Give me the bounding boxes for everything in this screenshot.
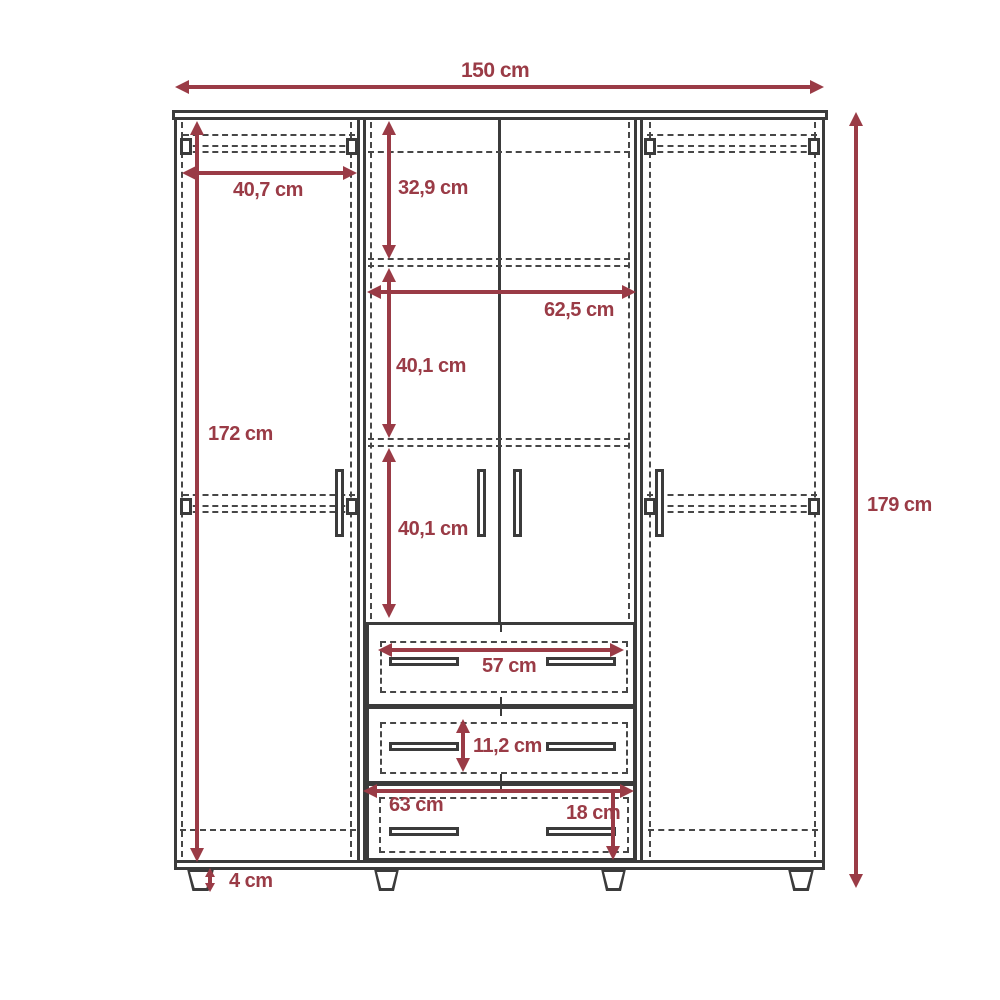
- rod-line: [183, 134, 355, 136]
- arrowhead-down: [382, 604, 396, 618]
- middle-right-door-handle: [513, 469, 522, 537]
- dim-label-left-interior-height: 172 cm: [208, 424, 273, 444]
- middle-drawer: [366, 706, 636, 784]
- rod-line: [183, 505, 355, 507]
- bottom-drawer: [366, 783, 636, 861]
- rod-line: [183, 494, 355, 496]
- dim-label-total-width: 150 cm: [461, 60, 529, 81]
- middle-door-dash-right: [628, 122, 630, 619]
- dim-line: [387, 279, 391, 426]
- leg-face: [377, 872, 396, 888]
- middle-door-split-line: [498, 118, 501, 624]
- left-side-panel: [174, 118, 177, 862]
- leg-face: [604, 872, 623, 888]
- drawer-center-tick: [500, 697, 502, 704]
- dim-line: [193, 171, 345, 175]
- arrowhead-up: [382, 268, 396, 282]
- drawer-handle-slot: [546, 827, 616, 836]
- dim-label-lower-middle-section-height: 40,1 cm: [398, 519, 468, 539]
- rod-end-bracket: [808, 138, 820, 155]
- rod-end-bracket: [180, 138, 192, 155]
- left-divider-panel: [357, 118, 366, 862]
- dim-line: [854, 123, 858, 876]
- dim-line: [378, 290, 624, 294]
- arrowhead-left: [182, 166, 196, 180]
- dim-line: [195, 132, 199, 850]
- dim-label-middle-section-width: 62,5 cm: [544, 300, 614, 320]
- rod-line: [183, 145, 355, 147]
- middle-shelf1-dash-a: [368, 258, 630, 260]
- dim-line: [387, 459, 391, 606]
- right-door-handle: [655, 469, 664, 537]
- rod-end-bracket: [808, 498, 820, 515]
- wardrobe-technical-diagram: 150 cm 179 cm 172 cm 40,7 cm 32,9 cm 62,…: [0, 0, 1000, 1000]
- right-bottom-shelf-dash: [648, 829, 818, 831]
- right-door-dash-left: [649, 122, 651, 857]
- left-top-hanging-rod: [180, 132, 358, 158]
- rod-line: [647, 494, 817, 496]
- leg-front-left: [187, 869, 214, 891]
- dim-label-top-section-height: 32,9 cm: [398, 178, 468, 198]
- left-middle-hanging-rod: [180, 492, 358, 518]
- drawer-center-tick: [500, 786, 502, 793]
- middle-top-shelf-dash: [368, 151, 630, 153]
- rod-line: [647, 151, 817, 153]
- drawer-handle-slot: [546, 742, 616, 751]
- arrowhead-right: [810, 80, 824, 94]
- drawer-handle-slot: [389, 657, 459, 666]
- drawer-center-tick: [500, 625, 502, 632]
- rod-line: [647, 145, 817, 147]
- dim-label-upper-middle-section-height: 40,1 cm: [396, 356, 466, 376]
- dim-line: [186, 85, 813, 89]
- left-door-dash-left: [181, 122, 183, 857]
- arrowhead-down: [849, 874, 863, 888]
- rod-end-bracket: [346, 498, 358, 515]
- right-side-panel: [822, 118, 825, 862]
- drawer-handle-slot: [389, 742, 459, 751]
- rod-end-bracket: [644, 138, 656, 155]
- drawer-front-dash: [380, 641, 628, 693]
- top-drawer: [366, 622, 636, 707]
- dim-label-leg-height: 4 cm: [229, 871, 273, 891]
- rod-line: [647, 511, 817, 513]
- middle-shelf2-dash-b: [368, 445, 630, 447]
- middle-door-dash-left: [370, 122, 372, 619]
- drawer-center-tick: [500, 709, 502, 716]
- leg-middle-right: [601, 869, 626, 891]
- right-door-dash-right: [814, 122, 816, 857]
- left-bottom-shelf-dash: [180, 829, 356, 831]
- arrowhead-up: [382, 448, 396, 462]
- left-door-handle: [335, 469, 344, 537]
- arrowhead-up: [382, 121, 396, 135]
- dim-label-total-height: 179 cm: [867, 495, 932, 515]
- leg-middle-left: [374, 869, 399, 891]
- middle-shelf1-dash-b: [368, 265, 630, 267]
- right-top-hanging-rod: [644, 132, 820, 158]
- rod-end-bracket: [180, 498, 192, 515]
- leg-front-right: [788, 869, 814, 891]
- middle-left-door-handle: [477, 469, 486, 537]
- drawer-front-dash: [379, 797, 629, 853]
- rod-line: [183, 151, 355, 153]
- arrowhead-up: [849, 112, 863, 126]
- drawer-handle-slot: [546, 657, 616, 666]
- drawer-handle-slot: [389, 827, 459, 836]
- arrowhead-left: [175, 80, 189, 94]
- dim-line: [387, 132, 391, 247]
- left-door-dash-right: [350, 122, 352, 857]
- dim-label-left-door-width: 40,7 cm: [233, 180, 303, 200]
- drawer-center-tick: [500, 774, 502, 781]
- leg-face: [190, 872, 211, 888]
- leg-face: [791, 872, 811, 888]
- rod-line: [647, 505, 817, 507]
- rod-end-bracket: [346, 138, 358, 155]
- arrowhead-down: [382, 245, 396, 259]
- rod-line: [183, 511, 355, 513]
- rod-line: [647, 134, 817, 136]
- bottom-panel: [174, 860, 825, 870]
- middle-shelf2-dash-a: [368, 438, 630, 440]
- right-middle-hanging-rod: [644, 492, 820, 518]
- arrowhead-down: [382, 424, 396, 438]
